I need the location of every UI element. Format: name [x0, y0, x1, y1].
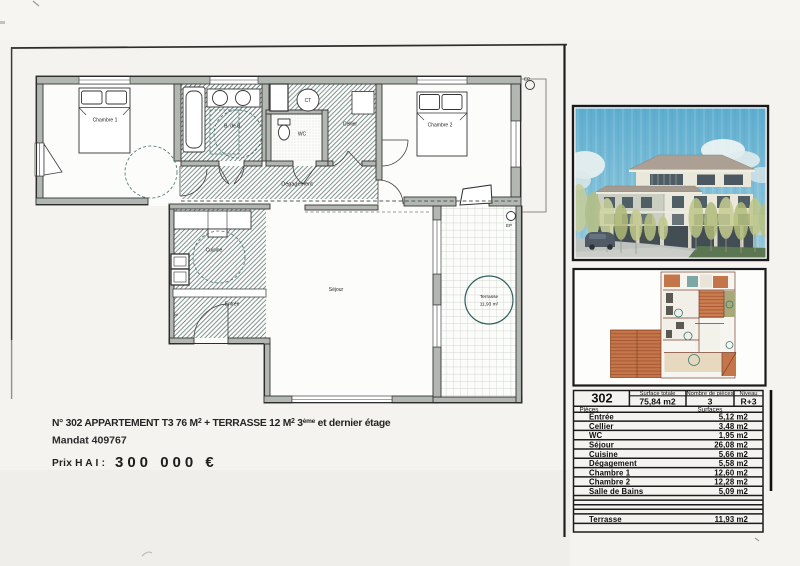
svg-text:300 000 €: 300 000 € [115, 454, 218, 471]
svg-text:CT: CT [305, 98, 312, 104]
svg-text:5,58 m2: 5,58 m2 [719, 459, 749, 468]
svg-text:Cellier: Cellier [589, 422, 614, 431]
svg-text:302: 302 [591, 391, 612, 406]
svg-text:EP: EP [524, 77, 530, 82]
svg-text:Terrasse: Terrasse [480, 294, 499, 300]
svg-text:Mandat 409767: Mandat 409767 [52, 435, 127, 447]
svg-text:Chambre 1: Chambre 1 [589, 468, 631, 477]
svg-text:R+3: R+3 [740, 397, 756, 407]
svg-text:Prix H A I :: Prix H A I : [52, 458, 105, 469]
svg-text:3: 3 [708, 397, 713, 407]
svg-text:5,12 m2: 5,12 m2 [719, 413, 749, 422]
svg-text:Entrée: Entrée [225, 302, 240, 308]
svg-text:Dégagement: Dégagement [589, 459, 637, 468]
svg-text:Chambre 2: Chambre 2 [428, 123, 453, 129]
svg-text:B. de B.: B. de B. [224, 124, 242, 130]
svg-text:EP: EP [506, 223, 512, 228]
svg-text:5,09 m2: 5,09 m2 [719, 487, 749, 496]
svg-text:Salle de Bains: Salle de Bains [589, 487, 644, 496]
svg-text:bl: bl [174, 312, 177, 317]
svg-text:Séjour: Séjour [589, 441, 614, 450]
svg-text:11,93 m2: 11,93 m2 [715, 515, 749, 524]
svg-text:Cuisine: Cuisine [206, 248, 223, 254]
svg-text:Entrée: Entrée [589, 413, 614, 422]
svg-text:Cuisine: Cuisine [589, 450, 618, 459]
svg-text:Séjour: Séjour [329, 287, 344, 293]
svg-text:Chambre 1: Chambre 1 [93, 118, 118, 124]
svg-text:26,08 m2: 26,08 m2 [714, 441, 748, 450]
svg-text:11,93 m²: 11,93 m² [480, 302, 499, 308]
svg-text:12,60 m2: 12,60 m2 [714, 468, 748, 477]
svg-text:Chambre 2: Chambre 2 [589, 478, 631, 487]
svg-text:1,95 m2: 1,95 m2 [719, 431, 749, 440]
svg-text:WC: WC [589, 431, 602, 440]
svg-text:WC: WC [298, 132, 307, 138]
svg-text:75,84 m2: 75,84 m2 [639, 397, 676, 407]
svg-text:Cellier: Cellier [343, 122, 358, 128]
svg-text:12,28 m2: 12,28 m2 [714, 478, 748, 487]
svg-text:Terrasse: Terrasse [589, 515, 622, 524]
svg-text:3,48 m2: 3,48 m2 [719, 422, 749, 431]
svg-text:Dégagement: Dégagement [281, 182, 313, 188]
svg-text:N° 302 APPARTEMENT T3 76 M2: N° 302 APPARTEMENT T3 76 M2 + TERRASSE 1… [52, 418, 391, 429]
svg-text:5,66 m2: 5,66 m2 [719, 450, 749, 459]
